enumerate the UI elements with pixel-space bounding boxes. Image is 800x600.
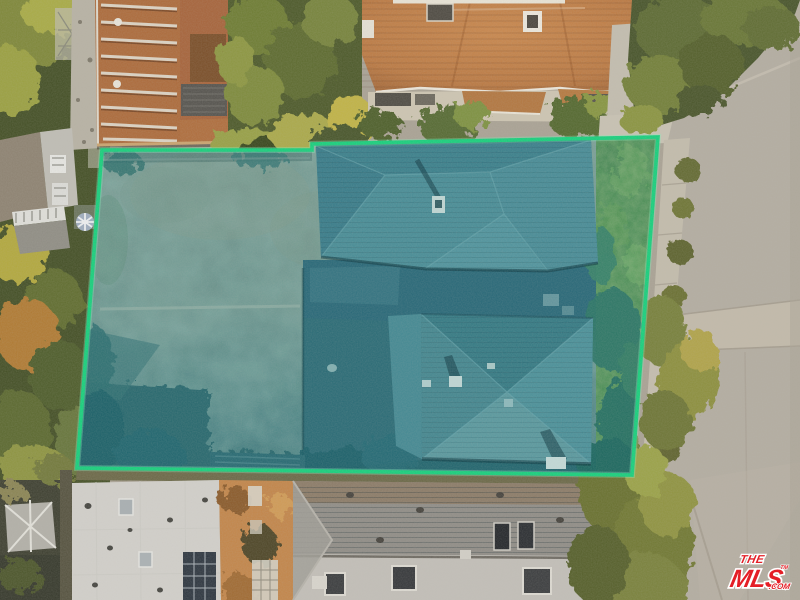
svg-text:THE: THE xyxy=(738,553,766,566)
svg-text:TM: TM xyxy=(779,565,789,571)
svg-text:.COM: .COM xyxy=(768,582,791,591)
